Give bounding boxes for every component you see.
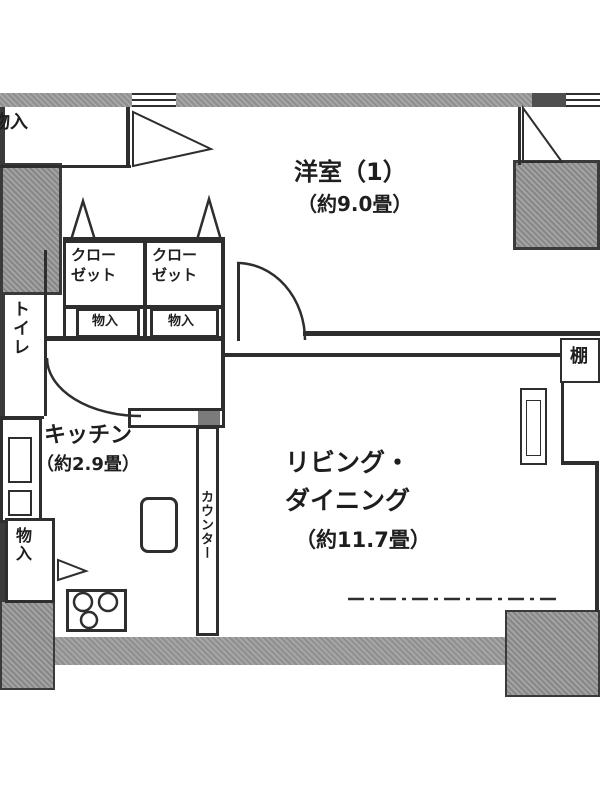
floorplan-canvas: 洋室（1） （約9.0畳） リビング・ ダイニング （約11.7畳） キッチン … <box>0 0 600 800</box>
label-bedroom-name: 洋室（1） <box>294 160 407 185</box>
wall-closet-left <box>63 237 66 341</box>
wall-living-west <box>221 356 225 411</box>
label-closet2-line2: ゼット <box>152 268 197 284</box>
label-kitchen-name: キッチン <box>44 424 132 447</box>
wall-storage-topleft-bottom <box>0 165 131 168</box>
door-arc-hall <box>47 358 141 416</box>
label-living-line2: ダイニング <box>285 488 410 514</box>
wall-bottom <box>55 637 510 665</box>
wall-right-jamb <box>518 107 521 165</box>
wall-bedroom-south-upper <box>303 331 600 336</box>
folding-door-mark-closet2 <box>197 199 221 240</box>
label-closet1-line1: クロー <box>71 248 116 264</box>
wall-top-dark-segment <box>532 93 566 107</box>
label-storage-bottomleft: 物入 <box>14 527 30 563</box>
label-kitchen-size: （約2.9畳） <box>36 456 140 475</box>
washstand-basin <box>8 437 32 483</box>
label-counter: カウンター <box>199 490 212 560</box>
wall-living-east-lower <box>595 461 599 612</box>
door-flag-top-right <box>523 108 562 162</box>
label-shelf: 棚 <box>570 348 588 367</box>
label-storage-under-closet1: 物入 <box>92 315 118 329</box>
wall-block-bottom-left <box>0 600 55 690</box>
wall-top <box>0 93 600 107</box>
label-living-line1: リビング・ <box>285 450 410 476</box>
window-top-right <box>566 93 600 107</box>
wall-bedroom-west <box>221 237 225 356</box>
door-arc-bedroom <box>237 263 305 340</box>
pillar-top-right <box>513 160 600 250</box>
wall-block-bottom-right <box>505 610 600 697</box>
door-leaf-bedroom <box>237 263 240 341</box>
label-closet1-line2: ゼット <box>71 268 116 284</box>
label-closet2-line1: クロー <box>152 248 197 264</box>
washstand-lower <box>8 490 32 516</box>
wall-toilet-right <box>44 250 47 416</box>
wall-closet-divider <box>143 237 147 341</box>
wall-bedroom-south-lower <box>221 353 567 357</box>
door-flag-storage-topleft <box>133 112 211 166</box>
label-storage-under-closet2: 物入 <box>168 315 194 329</box>
window-top-left <box>132 93 176 107</box>
label-bedroom-size: （約9.0畳） <box>297 194 412 215</box>
kitchen-counter-top-dark <box>198 411 220 425</box>
label-toilet: トイレ <box>10 300 27 357</box>
wall-living-east-step <box>561 461 598 465</box>
label-living-size: （約11.7畳） <box>295 529 431 551</box>
folding-door-mark-closet1 <box>71 201 95 240</box>
stove-box <box>66 589 127 632</box>
door-panel-right-inner <box>526 400 541 456</box>
door-flag-storage-bottomleft <box>58 560 86 580</box>
pillar-top-left <box>0 163 62 295</box>
wall-living-east-upper <box>561 383 564 463</box>
label-storage-topleft: 物入 <box>0 114 28 133</box>
wall-storage-topleft-right <box>126 107 130 168</box>
sink <box>140 497 178 553</box>
